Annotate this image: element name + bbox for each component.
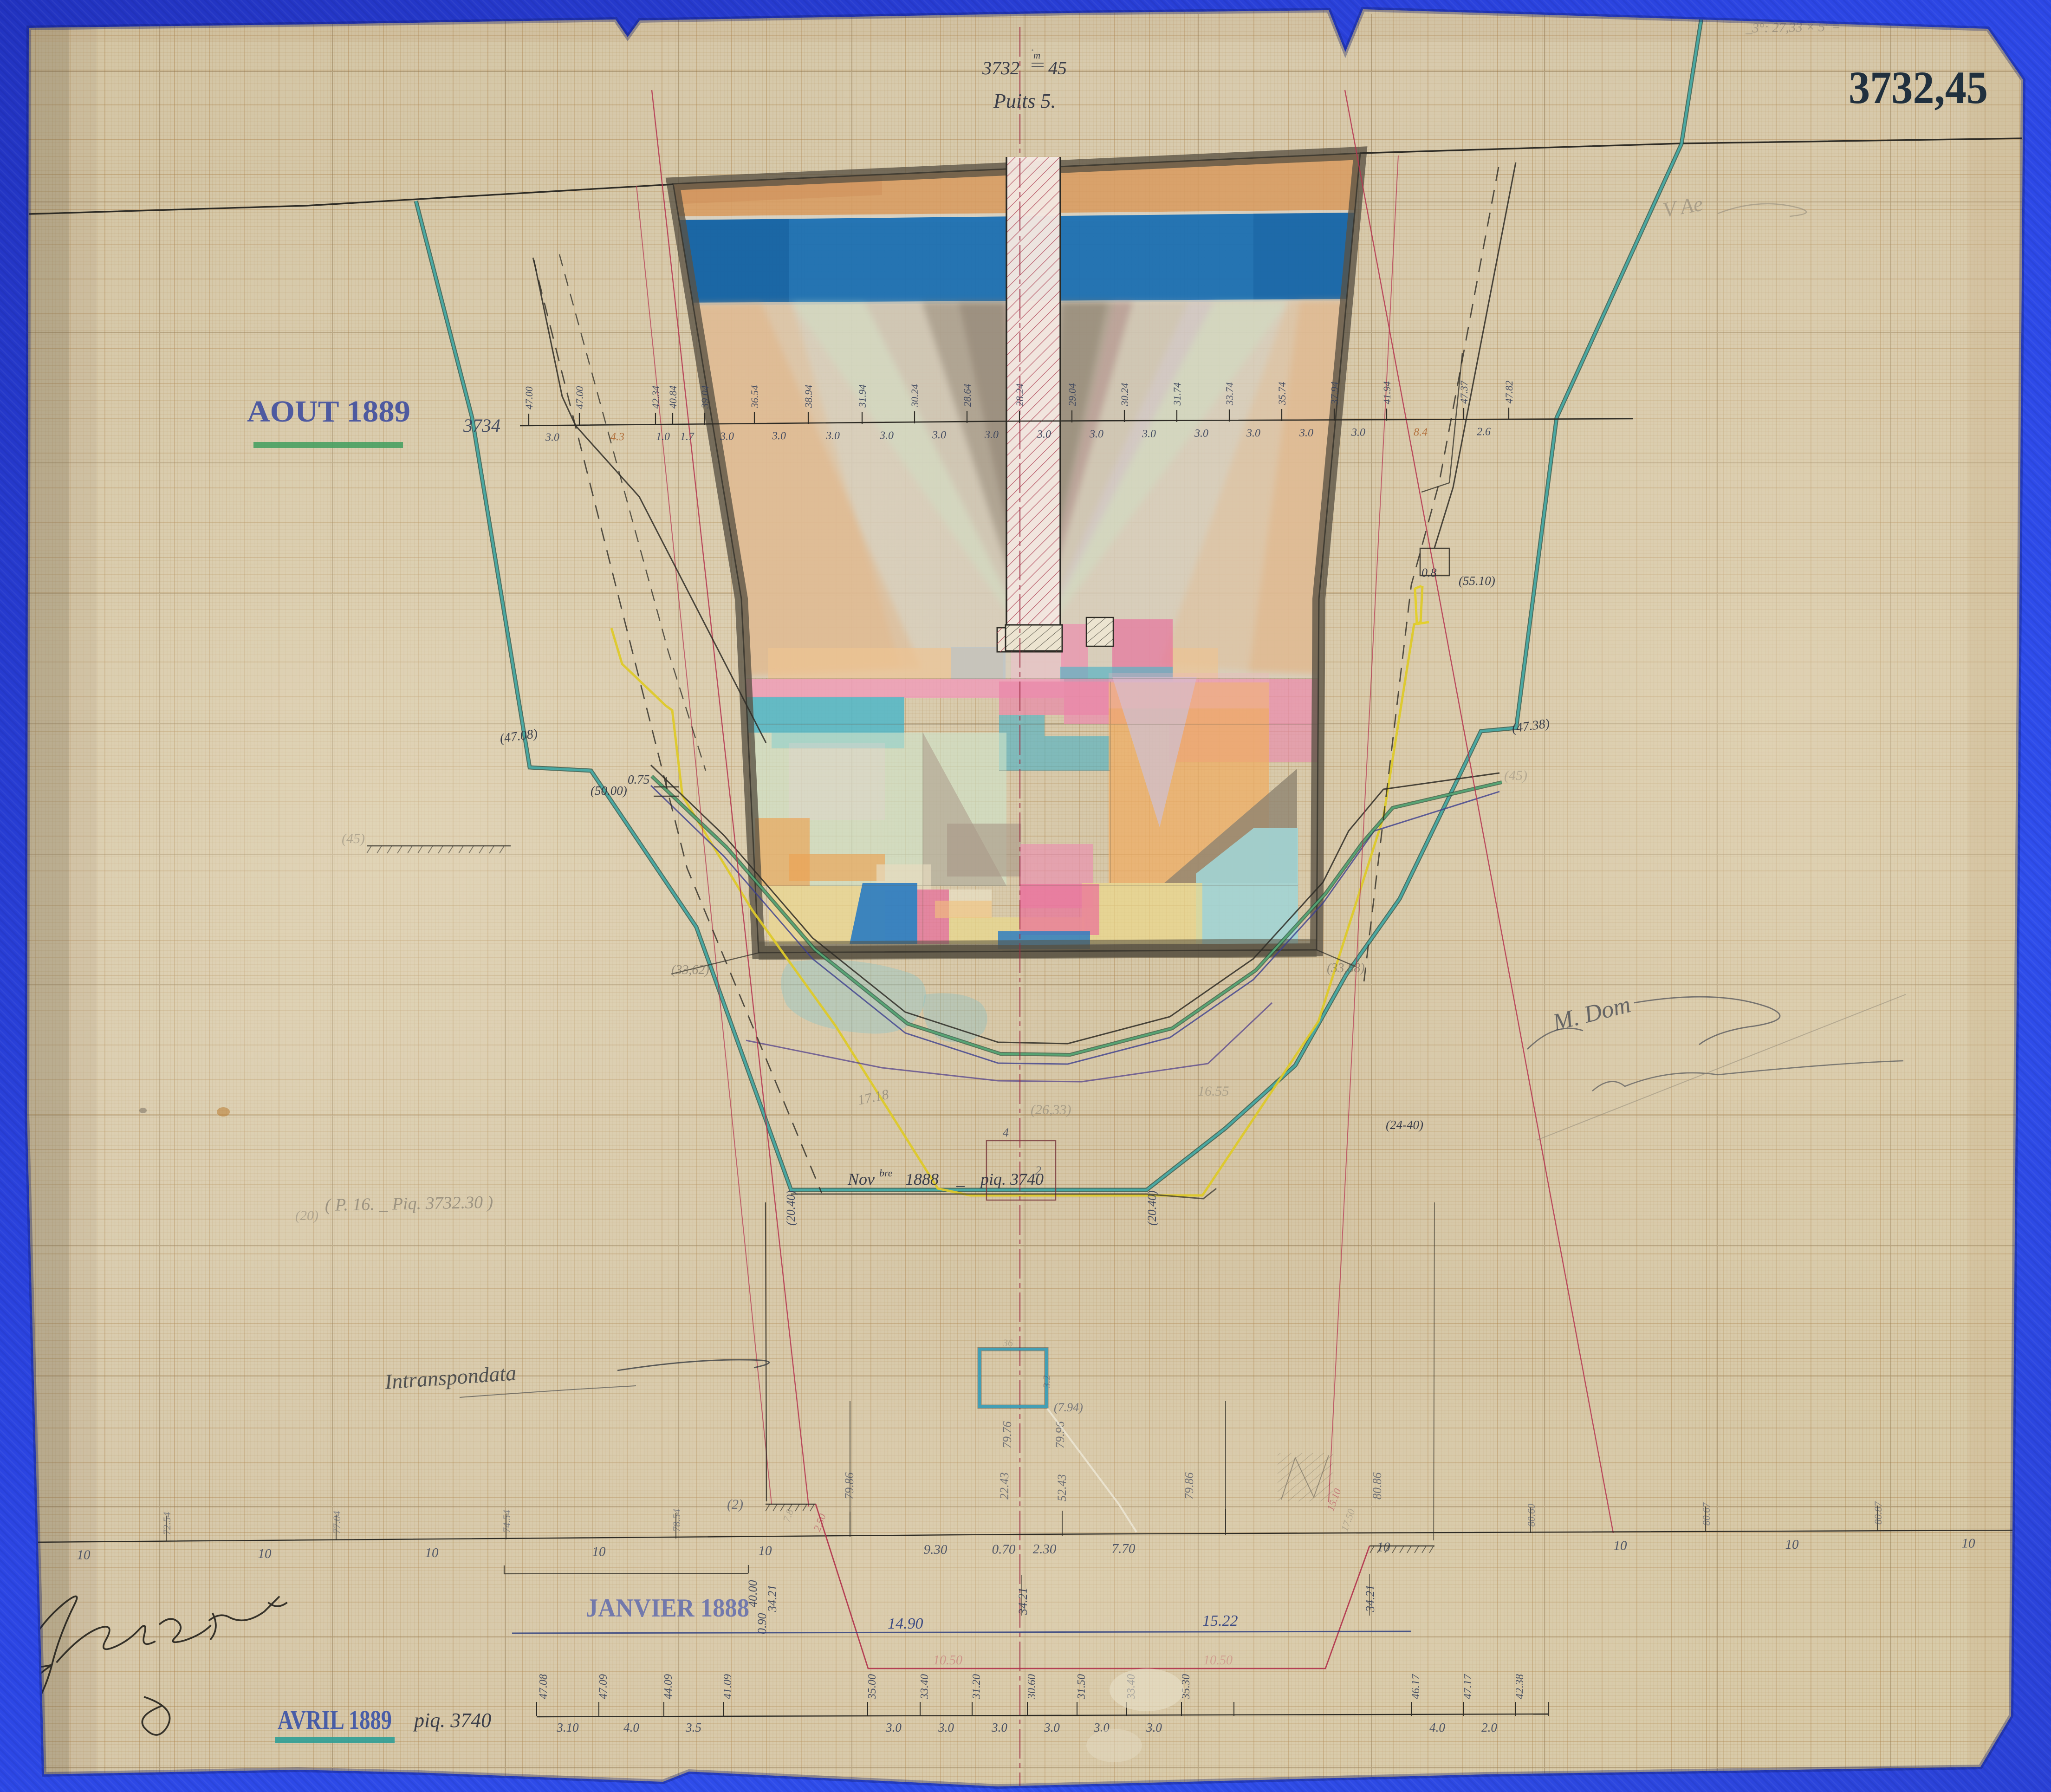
svg-text:4.0: 4.0 [623,1721,639,1734]
svg-text:3.0: 3.0 [885,1721,902,1734]
svg-text:33.74: 33.74 [1224,382,1235,406]
svg-text:15.22: 15.22 [1202,1612,1238,1630]
svg-text:3.0: 3.0 [545,432,559,444]
svg-text:80.86: 80.86 [1370,1473,1384,1500]
svg-text:36: 36 [1002,1337,1013,1349]
svg-text:74.54: 74.54 [501,1510,513,1533]
svg-text:42.38: 42.38 [1514,1674,1526,1699]
svg-text:36.54: 36.54 [749,385,760,409]
svg-text:80.60: 80.60 [1525,1504,1537,1527]
svg-text:m: m [1033,50,1040,61]
svg-text:4.3: 4.3 [610,431,624,443]
svg-text:0.8: 0.8 [1421,566,1437,579]
svg-text:(26,33): (26,33) [1031,1102,1071,1117]
svg-text:35.00: 35.00 [866,1674,878,1700]
svg-text:52.43: 52.43 [1055,1474,1069,1502]
svg-text:(20.40): (20.40) [1145,1190,1159,1226]
svg-text:3.0: 3.0 [1044,1721,1060,1734]
svg-text:3.0: 3.0 [1299,427,1313,439]
svg-text:34.21: 34.21 [1363,1585,1377,1613]
svg-text:1888: 1888 [905,1170,939,1188]
svg-text:16.55: 16.55 [1198,1084,1229,1099]
svg-text:10.50: 10.50 [933,1653,962,1668]
svg-text:3732,45: 3732,45 [1849,62,1988,113]
svg-text:80.87: 80.87 [1872,1501,1884,1525]
svg-text:3.0: 3.0 [1146,1721,1162,1734]
svg-text:10.50: 10.50 [1203,1653,1233,1668]
svg-text:3734: 3734 [463,415,500,436]
svg-text:piq. 3740: piq. 3740 [979,1170,1044,1188]
svg-text:28.24: 28.24 [1014,383,1025,407]
svg-text:10: 10 [1614,1538,1628,1553]
svg-text:(20): (20) [295,1208,318,1223]
svg-text:34.21: 34.21 [1016,1588,1030,1616]
svg-text:3.0: 3.0 [879,429,894,442]
svg-text:(7.94): (7.94) [1054,1401,1083,1414]
svg-text:3.0: 3.0 [720,430,734,442]
svg-text:31.74: 31.74 [1171,383,1183,406]
svg-text:47.08: 47.08 [538,1674,550,1699]
svg-text:3.0: 3.0 [991,1721,1007,1734]
svg-text:42.34: 42.34 [650,386,662,409]
svg-text:( P. 16. _ Piq. 3732.30 ): ( P. 16. _ Piq. 3732.30 ) [325,1193,493,1215]
svg-text:77.04: 77.04 [331,1511,343,1534]
svg-text:3.2: 3.2 [1041,1376,1052,1389]
svg-text:Puits 5.: Puits 5. [993,90,1056,112]
svg-text:37.94: 37.94 [1329,382,1340,405]
svg-text:4: 4 [1003,1126,1009,1139]
svg-text:(45): (45) [1504,768,1527,783]
svg-text:40.84: 40.84 [667,386,679,409]
svg-text:22.43: 22.43 [998,1473,1011,1500]
svg-text:(55.10): (55.10) [1459,574,1495,588]
svg-text:(45): (45) [342,831,365,846]
svg-text:41.94: 41.94 [1381,381,1393,404]
svg-text:2.30: 2.30 [1033,1542,1057,1557]
svg-text:10: 10 [425,1545,439,1560]
svg-text:10: 10 [759,1543,772,1558]
svg-text:29.04: 29.04 [1066,383,1078,406]
svg-text:3.0: 3.0 [1246,428,1260,440]
svg-text:30.60: 30.60 [1026,1674,1038,1700]
svg-text:(20.40): (20.40) [784,1190,798,1226]
svg-text:47.82: 47.82 [1503,381,1515,404]
svg-text:45: 45 [1048,58,1067,78]
svg-text:10: 10 [258,1546,272,1561]
svg-text:79.86: 79.86 [843,1473,856,1500]
svg-text:47.09: 47.09 [597,1674,610,1699]
svg-text:47.00: 47.00 [523,386,535,409]
svg-text:AOUT 1889: AOUT 1889 [247,395,410,429]
svg-text:30.24: 30.24 [909,384,921,408]
svg-text:10: 10 [592,1545,606,1559]
svg-text:79.86: 79.86 [1182,1473,1196,1500]
svg-text:0.75: 0.75 [628,773,649,786]
svg-text:3.0: 3.0 [938,1721,954,1734]
svg-text:38.94: 38.94 [803,385,814,409]
svg-text:1.0: 1.0 [656,431,670,443]
svg-text:1.7: 1.7 [680,431,694,443]
svg-text:JANVIER 1888: JANVIER 1888 [586,1594,749,1623]
svg-text:(33,62): (33,62) [671,963,709,977]
svg-text:3732: 3732 [982,58,1019,78]
svg-text:bre: bre [879,1167,893,1179]
svg-text:0.70: 0.70 [992,1542,1016,1557]
svg-text:78.54: 78.54 [671,1509,682,1532]
svg-text:31.50: 31.50 [1076,1674,1088,1700]
svg-text:3.0: 3.0 [932,429,946,442]
svg-text:4.0: 4.0 [1429,1721,1445,1734]
svg-text:9.30: 9.30 [924,1542,948,1557]
svg-text:46.17: 46.17 [1410,1674,1422,1699]
svg-text:44.09: 44.09 [662,1674,675,1699]
svg-text:2.0: 2.0 [1481,1721,1497,1734]
svg-text:31.20: 31.20 [971,1674,983,1700]
svg-text:3.10: 3.10 [556,1721,579,1734]
svg-text:3.0: 3.0 [1142,428,1156,440]
svg-text:(50.00): (50.00) [591,784,627,798]
svg-text:Nov: Nov [847,1170,875,1188]
svg-text:10: 10 [1962,1536,1976,1551]
svg-text:79.76: 79.76 [1000,1422,1014,1449]
svg-text:34.21: 34.21 [766,1585,779,1613]
svg-text:piq. 3740: piq. 3740 [413,1709,491,1732]
svg-text:80.67: 80.67 [1701,1502,1712,1526]
svg-text:47.00: 47.00 [574,386,585,409]
svg-text:8.4: 8.4 [1414,426,1428,438]
svg-text:3.0: 3.0 [984,429,999,441]
svg-text:3.0: 3.0 [772,430,786,442]
svg-text:AVRIL 1889: AVRIL 1889 [278,1705,392,1735]
svg-text:30.24: 30.24 [1119,383,1130,407]
svg-text:35.74: 35.74 [1276,382,1288,406]
svg-text:(24-40): (24-40) [1386,1118,1423,1132]
svg-text:3.0: 3.0 [1194,428,1208,440]
svg-text:28.64: 28.64 [961,384,973,407]
svg-text:3.0: 3.0 [1037,429,1051,441]
svg-text:3.0: 3.0 [1351,427,1365,439]
svg-text:(2): (2) [727,1497,743,1512]
svg-text:10: 10 [77,1547,91,1562]
svg-text:7.70: 7.70 [1112,1541,1136,1556]
svg-text:72.54: 72.54 [161,1512,173,1535]
svg-text:39.04: 39.04 [699,385,711,409]
svg-text:2.6: 2.6 [1477,426,1491,438]
svg-text:47.17: 47.17 [1462,1674,1474,1699]
svg-text:0.90: 0.90 [755,1613,769,1635]
svg-text:3.0: 3.0 [1089,429,1103,441]
svg-text:47.37: 47.37 [1458,380,1470,404]
svg-text:(33,88): (33,88) [1327,961,1365,975]
svg-text:14.90: 14.90 [888,1615,923,1632]
svg-text:3.5: 3.5 [685,1721,701,1734]
svg-text:31.94: 31.94 [857,384,868,408]
svg-text:41.09: 41.09 [722,1674,734,1699]
svg-text:33.40: 33.40 [919,1674,931,1700]
svg-text:_: _ [956,1170,965,1188]
svg-text:3.0: 3.0 [825,430,840,442]
svg-text:10: 10 [1785,1537,1799,1552]
